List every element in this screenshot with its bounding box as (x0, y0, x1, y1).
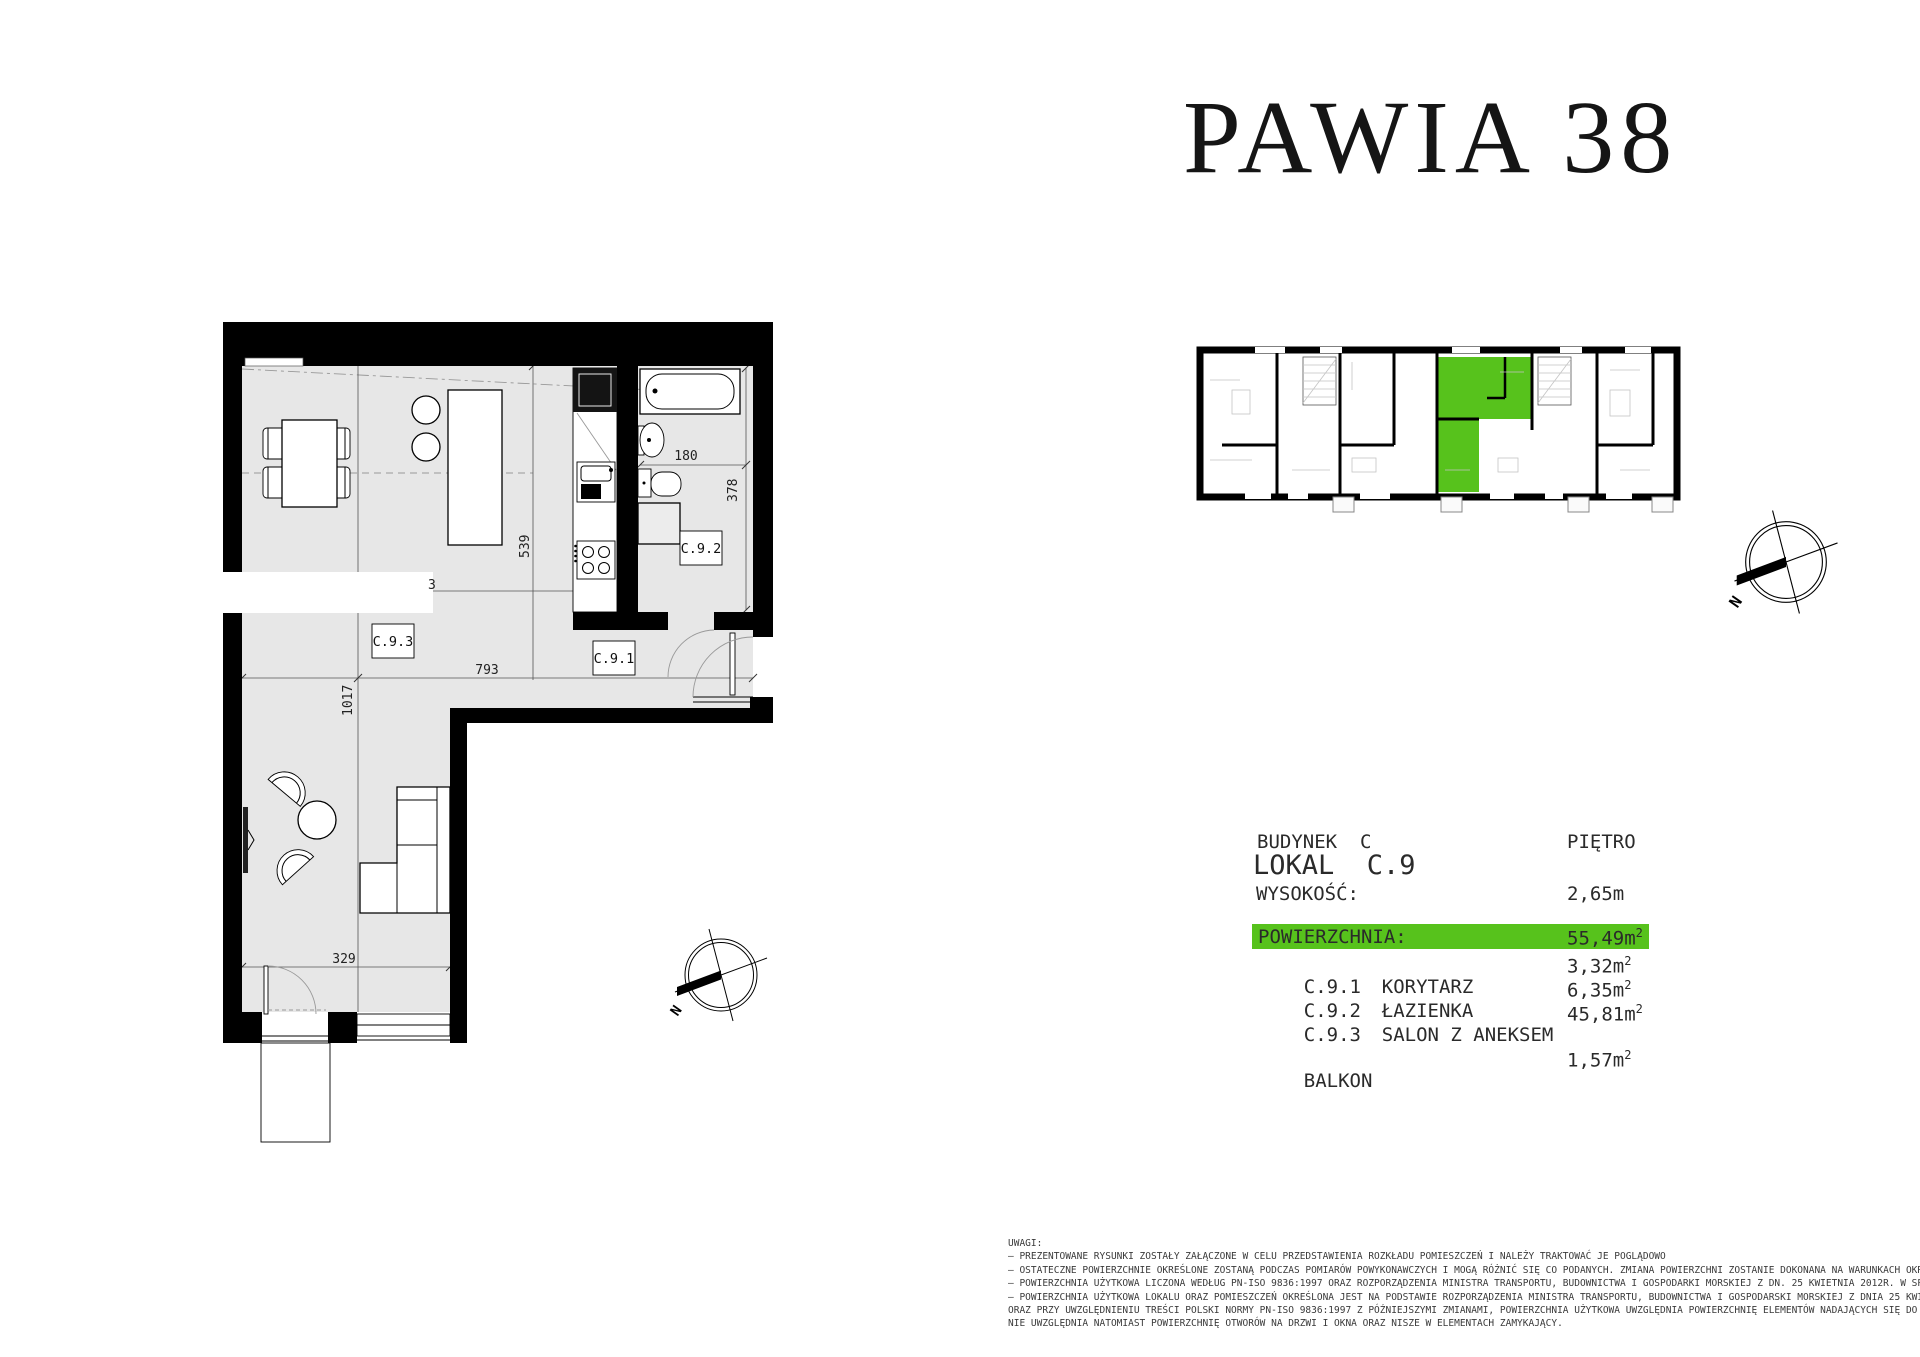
bathtub (640, 369, 740, 414)
dim-salon-width: 793 (475, 663, 498, 678)
wall-niche (245, 358, 303, 366)
dim-total-depth: 1017 (341, 685, 356, 716)
stairwell (1303, 357, 1336, 405)
apartment-floorplan: C.9.3 C.9.1 C.9.2 793 1017 539 329 180 3… (0, 322, 773, 1142)
dim-bath-depth: 378 (726, 479, 741, 502)
note-line: – POWIERZCHNIA UŻYTKOWA LOKALU ORAZ POMI… (1008, 1291, 1920, 1304)
stairwell (1538, 357, 1571, 405)
note-line: – OSTATECZNE POWIERZCHNIE OKREŚLONE ZOST… (1008, 1264, 1920, 1277)
north-compass-icon: N (666, 929, 767, 1021)
stool (412, 396, 440, 424)
toilet (638, 469, 681, 497)
kitchen (573, 368, 617, 612)
note-line: ORAZ PRZY UWZGLĘDNIENIU TREŚCI POLSKI NO… (1008, 1304, 1920, 1317)
dim-remnant: 3 (428, 578, 436, 593)
balcony (261, 1043, 330, 1142)
note-line: NIE UWZGLĘDNIA NATOMIAST POWIERZCHNIĘ OT… (1008, 1317, 1920, 1330)
floorplan-page: C.9.3 C.9.1 C.9.2 793 1017 539 329 180 3… (0, 0, 1920, 1357)
stool (412, 433, 440, 461)
bathroom-sink (638, 423, 664, 457)
fridge (573, 368, 617, 412)
kitchen-sink (577, 462, 615, 502)
page-title: PAWIA 38 (1183, 78, 1678, 197)
height-value: 2,65m (1567, 883, 1624, 905)
notes-heading: UWAGI: (1008, 1237, 1920, 1250)
note-line: – PREZENTOWANE RYSUNKI ZOSTAŁY ZAŁĄCZONE… (1008, 1250, 1920, 1263)
note-line: – POWIERZCHNIA UŻYTKOWA LICZONA WEDŁUG P… (1008, 1277, 1920, 1290)
label-bath: C.9.2 (681, 541, 722, 557)
unit-label: LOKAL C.9 (1253, 850, 1416, 881)
stove (574, 541, 615, 579)
washing-machine (638, 503, 680, 544)
drawing-canvas: C.9.3 C.9.1 C.9.2 793 1017 539 329 180 3… (0, 0, 1920, 1357)
tv (243, 807, 248, 873)
area-label: POWIERZCHNIA: (1258, 926, 1407, 948)
dim-lower-width: 329 (332, 952, 355, 967)
height-label: WYSOKOŚĆ: (1256, 883, 1359, 905)
dim-kitchen-depth: 539 (518, 535, 533, 558)
north-compass-icon: N (1725, 510, 1838, 613)
north-letter: N (666, 1002, 684, 1018)
building-overview: N (1200, 347, 1838, 614)
floor-label: PIĘTRO (1567, 831, 1636, 853)
kitchen-island (448, 390, 502, 545)
dim-bath-width: 180 (674, 449, 697, 464)
label-salon: C.9.3 (373, 634, 414, 650)
balcony-row: BALKON 1,57m2 (1258, 1048, 1678, 1136)
label-hall: C.9.1 (594, 651, 635, 667)
redaction-band (0, 572, 433, 613)
coffee-table (298, 801, 336, 839)
north-letter: N (1725, 592, 1746, 611)
total-area-value: 55,49m2 (1567, 926, 1643, 949)
legal-notes: UWAGI: – PREZENTOWANE RYSUNKI ZOSTAŁY ZA… (1008, 1237, 1920, 1331)
